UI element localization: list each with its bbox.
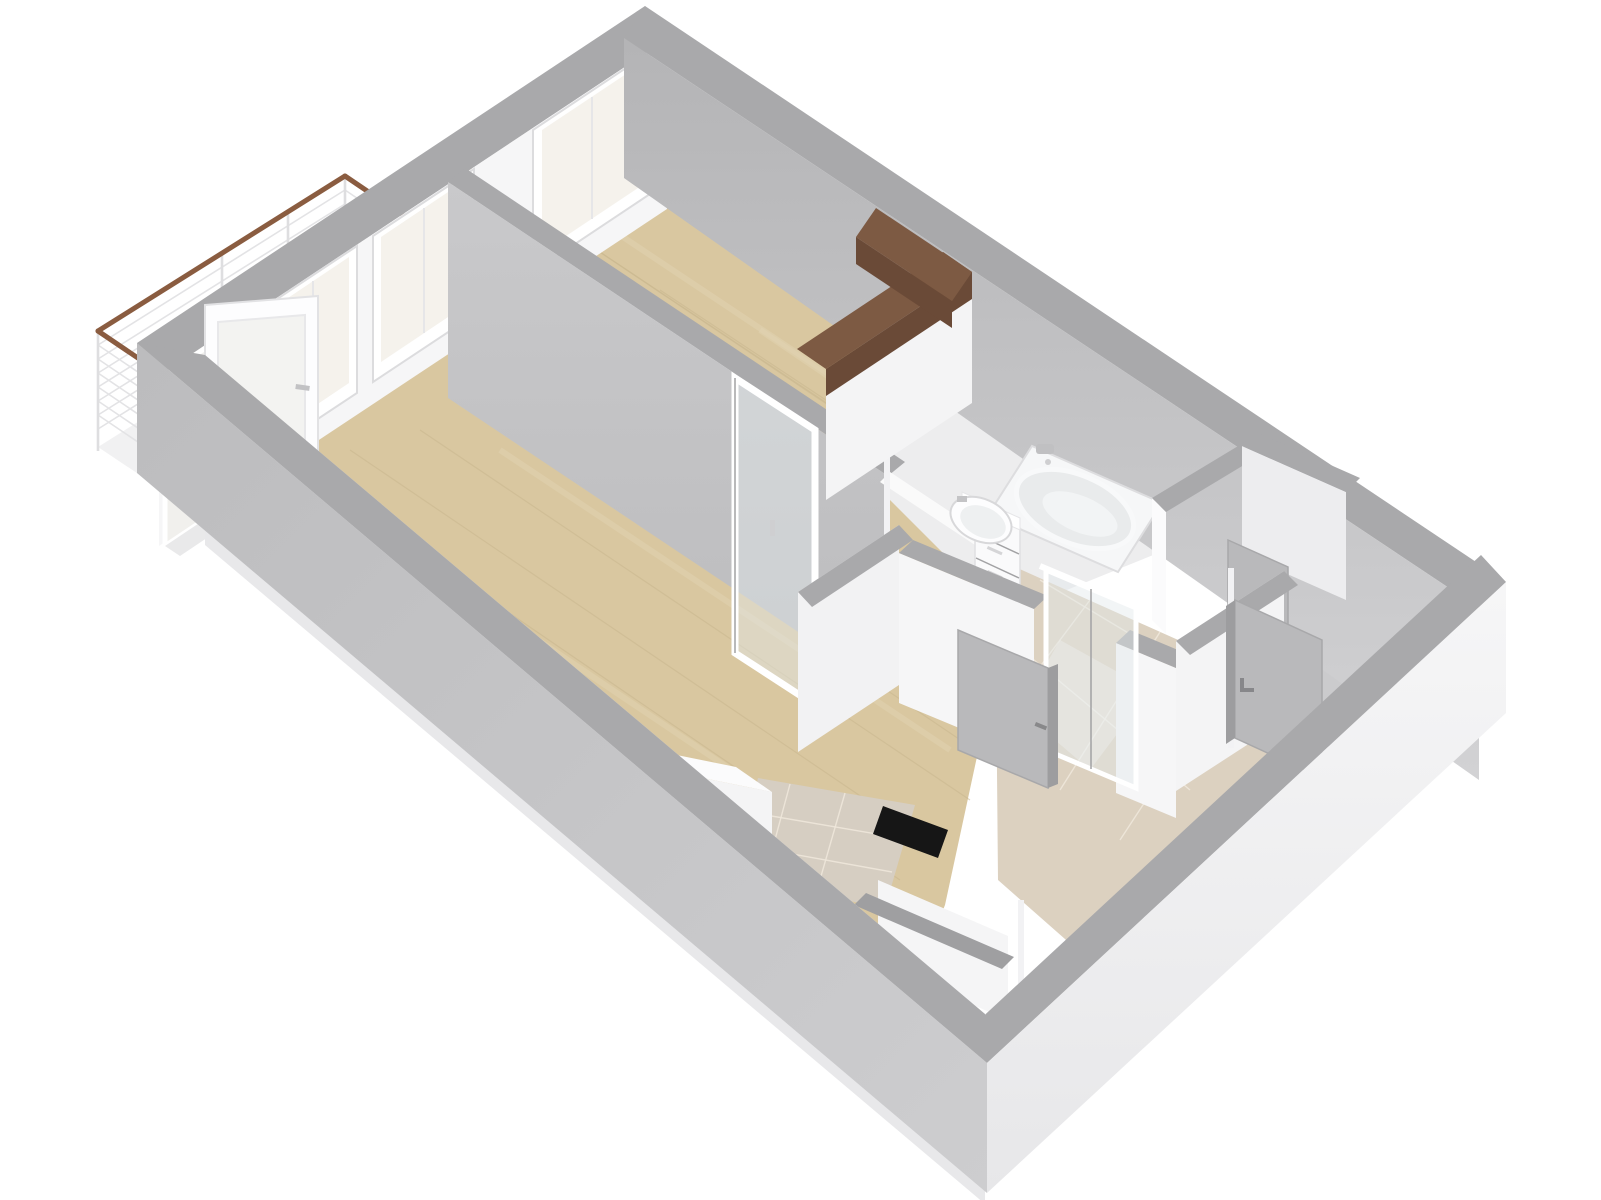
interior-door-panel-edge xyxy=(1048,664,1058,788)
glass-door-handle xyxy=(770,520,775,536)
door-handle xyxy=(1240,678,1244,690)
niche-door-jamb xyxy=(1018,900,1024,990)
bathtub-faucet xyxy=(1036,444,1054,454)
closet-wall-face-1 xyxy=(1152,498,1166,634)
floorplan-viewport xyxy=(0,0,1601,1200)
floorplan-3d-render xyxy=(0,0,1601,1200)
bathtub-drain xyxy=(1045,459,1051,465)
entry-door-panel-edge xyxy=(1226,600,1235,744)
sink-tap xyxy=(957,496,967,502)
